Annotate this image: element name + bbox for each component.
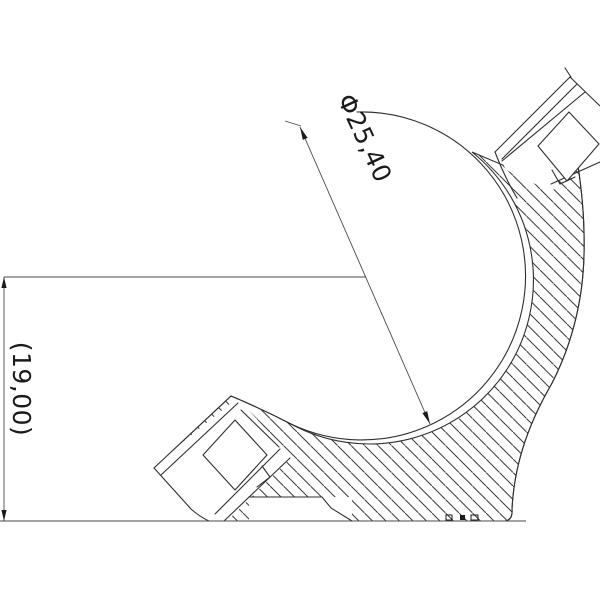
base-recess-mask bbox=[249, 497, 352, 521]
diameter-dimension: Φ25,40 bbox=[285, 89, 430, 424]
height-arrow-bottom bbox=[1, 510, 6, 521]
diameter-arrow-bottom bbox=[422, 411, 430, 424]
diameter-arrow-top bbox=[300, 127, 308, 140]
height-arrow-top bbox=[1, 277, 6, 288]
diameter-dimension-tail bbox=[285, 121, 301, 126]
diameter-dimension-label: Φ25,40 bbox=[332, 89, 398, 187]
part-section-view: (19,00) Φ25,40 bbox=[0, 0, 600, 600]
technical-drawing-canvas: (19,00) Φ25,40 bbox=[0, 0, 600, 600]
height-dimension-label: (19,00) bbox=[7, 342, 36, 437]
